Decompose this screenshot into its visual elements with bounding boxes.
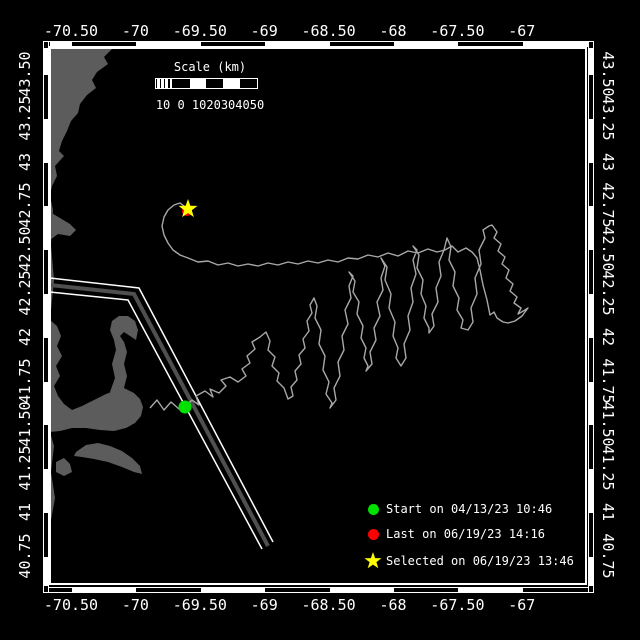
lat-tick-label: 41.50 (16, 402, 34, 447)
lat-tick-label: 43.50 (599, 51, 617, 96)
neatline-right (588, 41, 594, 593)
map-canvas[interactable] (0, 0, 640, 640)
scale-bar: Scale (km) 10 0 1020304050 (130, 60, 290, 112)
start-marker[interactable] (179, 401, 192, 414)
scale-bar-hatch (157, 79, 160, 88)
neatline-top (43, 41, 594, 47)
lon-tick-label: -68.50 (302, 596, 356, 614)
lat-tick-label: 41.25 (599, 446, 617, 491)
landmass (50, 432, 55, 524)
lat-tick-label: 43 (599, 153, 617, 171)
landmass (50, 212, 76, 240)
neatline-segment (44, 557, 48, 586)
neatline-segment (265, 42, 329, 46)
neatline-segment (589, 469, 593, 513)
legend-selected-label: Selected on 06/19/23 13:46 (386, 554, 574, 568)
map-viewer: -70.50-70-69.50-69-68.50-68-67.50-67 -70… (0, 0, 640, 640)
scale-bar-graphic (155, 78, 258, 89)
neatline-segment (44, 206, 48, 250)
landmass (50, 320, 143, 432)
scale-bar-title: Scale (km) (130, 60, 290, 74)
lat-tick-label: 40.75 (16, 533, 34, 578)
neatline-segment (44, 382, 48, 426)
neatline-left (43, 41, 49, 593)
neatline-segment (589, 382, 593, 426)
landmass (56, 458, 72, 476)
scale-bar-segment (190, 79, 207, 88)
neatline-segment (201, 588, 265, 592)
lat-tick-label: 43.50 (16, 51, 34, 96)
start-dot-icon (360, 504, 386, 515)
neatline-segment (72, 588, 136, 592)
legend-row-selected: Selected on 06/19/23 13:46 (360, 552, 574, 570)
lat-tick-label: 41.75 (16, 358, 34, 403)
star-icon (364, 552, 381, 568)
landmass (110, 316, 138, 401)
lat-tick-label: 41.75 (599, 358, 617, 403)
scale-bar-hatch (161, 79, 164, 88)
neatline-segment (589, 294, 593, 338)
lon-tick-label: -70 (122, 596, 149, 614)
lat-tick-label: 42.75 (16, 183, 34, 228)
lon-tick-label: -67 (508, 22, 535, 40)
scale-bar-segment (223, 79, 240, 88)
lon-tick-label: -69 (251, 596, 278, 614)
neatline-segment (458, 588, 522, 592)
neatline-segment (394, 42, 458, 46)
scale-bar-hatch (170, 79, 173, 88)
lon-tick-label: -70 (122, 22, 149, 40)
neatline-segment (44, 48, 48, 75)
lon-tick-label: -68.50 (302, 22, 356, 40)
neatline-segment (589, 206, 593, 250)
lon-tick-label: -68 (379, 22, 406, 40)
lon-tick-label: -68 (379, 596, 406, 614)
lat-tick-label: 42.25 (16, 270, 34, 315)
vehicle-track-line (150, 203, 528, 410)
neatline-segment (50, 42, 72, 46)
neatline-segment (523, 42, 588, 46)
lat-tick-label: 42.50 (16, 227, 34, 272)
lon-tick-label: -67 (508, 596, 535, 614)
landmass (50, 48, 113, 196)
lat-tick-label: 41.25 (16, 446, 34, 491)
lon-tick-label: -70.50 (44, 22, 98, 40)
landmass (74, 443, 142, 474)
lat-tick-label: 42 (599, 328, 617, 346)
lat-tick-label: 42.50 (599, 227, 617, 272)
last-dot-icon (360, 529, 386, 540)
lon-tick-label: -70.50 (44, 596, 98, 614)
lat-tick-label: 41 (16, 503, 34, 521)
selected-star-icon (360, 551, 386, 571)
lat-tick-label: 43.25 (16, 95, 34, 140)
neatline-segment (44, 294, 48, 338)
lat-tick-label: 43.25 (599, 95, 617, 140)
legend-last-label: Last on 06/19/23 14:16 (386, 527, 545, 541)
lon-tick-label: -69 (251, 22, 278, 40)
neatline-segment (330, 588, 394, 592)
legend-row-start: Start on 04/13/23 10:46 (360, 500, 552, 518)
neatline-segment (44, 469, 48, 513)
lon-tick-label: -69.50 (173, 22, 227, 40)
legend-start-label: Start on 04/13/23 10:46 (386, 502, 552, 516)
neatline-bottom (43, 587, 594, 593)
legend-row-last: Last on 06/19/23 14:16 (360, 525, 545, 543)
neatline-segment (44, 119, 48, 163)
scale-bar-ticks: 10 0 1020304050 (130, 98, 290, 112)
scale-bar-hatch (165, 79, 168, 88)
lat-tick-label: 41.50 (599, 402, 617, 447)
neatline-segment (589, 557, 593, 586)
neatline-segment (589, 48, 593, 75)
lon-tick-label: -67.50 (430, 596, 484, 614)
lat-tick-label: 42 (16, 328, 34, 346)
neatline-segment (589, 119, 593, 163)
lat-tick-label: 42.75 (599, 183, 617, 228)
lat-tick-label: 42.25 (599, 270, 617, 315)
lat-tick-label: 40.75 (599, 533, 617, 578)
neatline-segment (136, 42, 200, 46)
lon-tick-label: -69.50 (173, 596, 227, 614)
lat-tick-label: 41 (599, 503, 617, 521)
lon-tick-label: -67.50 (430, 22, 484, 40)
lat-tick-label: 43 (16, 153, 34, 171)
